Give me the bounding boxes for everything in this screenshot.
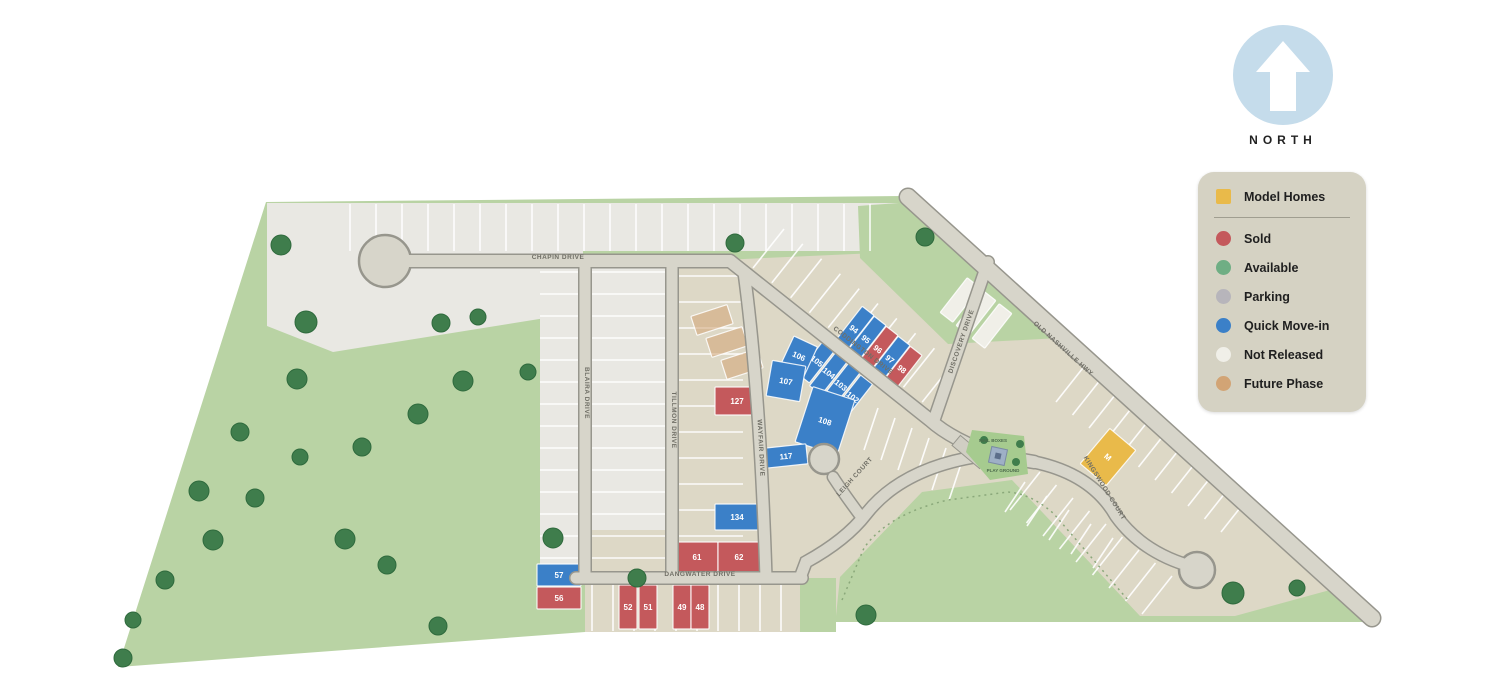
model-homes-legend-icon	[1216, 189, 1231, 204]
tree-icon	[287, 369, 307, 389]
tree-icon	[470, 309, 486, 325]
tree-icon	[246, 489, 264, 507]
lot-number: 51	[644, 603, 653, 612]
tree-icon	[432, 314, 450, 332]
map-legend: Model HomesSoldAvailableParkingQuick Mov…	[1198, 172, 1366, 412]
site-map-page: 9495969798105104103102106107108117134127…	[0, 0, 1500, 681]
lot-number: 134	[730, 513, 744, 522]
tree-icon	[203, 530, 223, 550]
tree-icon	[408, 404, 428, 424]
lot-51[interactable]: 51	[639, 585, 657, 629]
lot-number: 61	[693, 553, 702, 562]
not-released-area-gray-band-chapin	[333, 203, 902, 251]
legend-item-label: Parking	[1244, 290, 1290, 304]
tree-icon	[916, 228, 934, 246]
lot-number: 49	[678, 603, 687, 612]
tree-icon	[295, 311, 317, 333]
tree-icon	[453, 371, 473, 391]
not-released-area-gray-column-b	[592, 263, 666, 530]
playground-equipment-icon	[994, 452, 1001, 459]
lot-number: 62	[735, 553, 744, 562]
street-name-blaira-drive: BLAIRA DRIVE	[583, 367, 590, 419]
street-name-dangwater-drive: DANGWATER DRIVE	[664, 571, 735, 578]
legend-item-sold: Sold	[1198, 224, 1366, 253]
tree-icon	[628, 569, 646, 587]
lot-117[interactable]: 117	[764, 444, 808, 468]
tree-icon	[726, 234, 744, 252]
lot-number: 117	[779, 451, 793, 461]
legend-item-label: Available	[1244, 261, 1298, 275]
lot-107[interactable]: 107	[766, 360, 806, 401]
lot-48[interactable]: 48	[691, 585, 709, 629]
street-name-chapin-drive: CHAPIN DRIVE	[532, 254, 585, 261]
tree-icon	[271, 235, 291, 255]
north-arrow-circle	[1233, 25, 1333, 125]
future-phase-legend-icon	[1216, 376, 1231, 391]
legend-item-label: Quick Move-in	[1244, 319, 1329, 333]
lot-56[interactable]: 56	[537, 587, 581, 609]
tree-icon	[543, 528, 563, 548]
tree-icon	[378, 556, 396, 574]
tree-icon	[189, 481, 209, 501]
legend-item-label: Future Phase	[1244, 377, 1323, 391]
parking-legend-icon	[1216, 289, 1231, 304]
street-name-tillmon-drive: TILLMON DRIVE	[670, 391, 677, 448]
lot-number: 56	[555, 594, 564, 603]
not-released-legend-icon	[1216, 347, 1231, 362]
tree-icon	[856, 605, 876, 625]
middle-column-lots	[592, 530, 666, 578]
lot-61[interactable]: 61	[676, 542, 718, 572]
tree-icon	[1222, 582, 1244, 604]
tree-icon	[1289, 580, 1305, 596]
north-arrow-icon	[1233, 25, 1333, 125]
tree-icon	[353, 438, 371, 456]
tree-icon	[335, 529, 355, 549]
park-tree-icon	[1012, 458, 1020, 466]
north-indicator: NORTH	[1231, 25, 1335, 147]
cul-de-sac-surface	[363, 239, 407, 283]
tree-icon	[429, 617, 447, 635]
lot-62[interactable]: 62	[718, 542, 760, 572]
park-tree-icon	[1016, 440, 1024, 448]
legend-items: Model HomesSoldAvailableParkingQuick Mov…	[1198, 182, 1366, 398]
park-label: PLAY GROUND	[987, 468, 1021, 473]
quick-move-in-legend-icon	[1216, 318, 1231, 333]
north-label: NORTH	[1231, 133, 1335, 147]
lot-number: 52	[624, 603, 633, 612]
available-legend-icon	[1216, 260, 1231, 275]
legend-divider	[1214, 217, 1350, 218]
legend-item-label: Sold	[1244, 232, 1271, 246]
legend-item-quick-move-in: Quick Move-in	[1198, 311, 1366, 340]
lot-134[interactable]: 134	[715, 504, 759, 530]
lot-number: 57	[555, 571, 564, 580]
park-label: MAIL BOXES	[979, 438, 1007, 443]
cul-de-sac-surface	[1183, 556, 1211, 584]
lot-number: 127	[730, 397, 744, 406]
tree-icon	[231, 423, 249, 441]
legend-item-future-phase: Future Phase	[1198, 369, 1366, 398]
legend-item-available: Available	[1198, 253, 1366, 282]
legend-item-parking: Parking	[1198, 282, 1366, 311]
tree-icon	[292, 449, 308, 465]
tree-icon	[114, 649, 132, 667]
lot-number: 48	[696, 603, 705, 612]
tree-icon	[156, 571, 174, 589]
lot-52[interactable]: 52	[619, 585, 637, 629]
tree-icon	[125, 612, 141, 628]
cul-de-sac-surface	[813, 448, 835, 470]
tree-icon	[520, 364, 536, 380]
sold-legend-icon	[1216, 231, 1231, 246]
legend-item-not-released: Not Released	[1198, 340, 1366, 369]
lot-49[interactable]: 49	[673, 585, 691, 629]
legend-item-label: Model Homes	[1244, 190, 1325, 204]
legend-item-label: Not Released	[1244, 348, 1323, 362]
legend-item-model-homes: Model Homes	[1198, 182, 1366, 211]
